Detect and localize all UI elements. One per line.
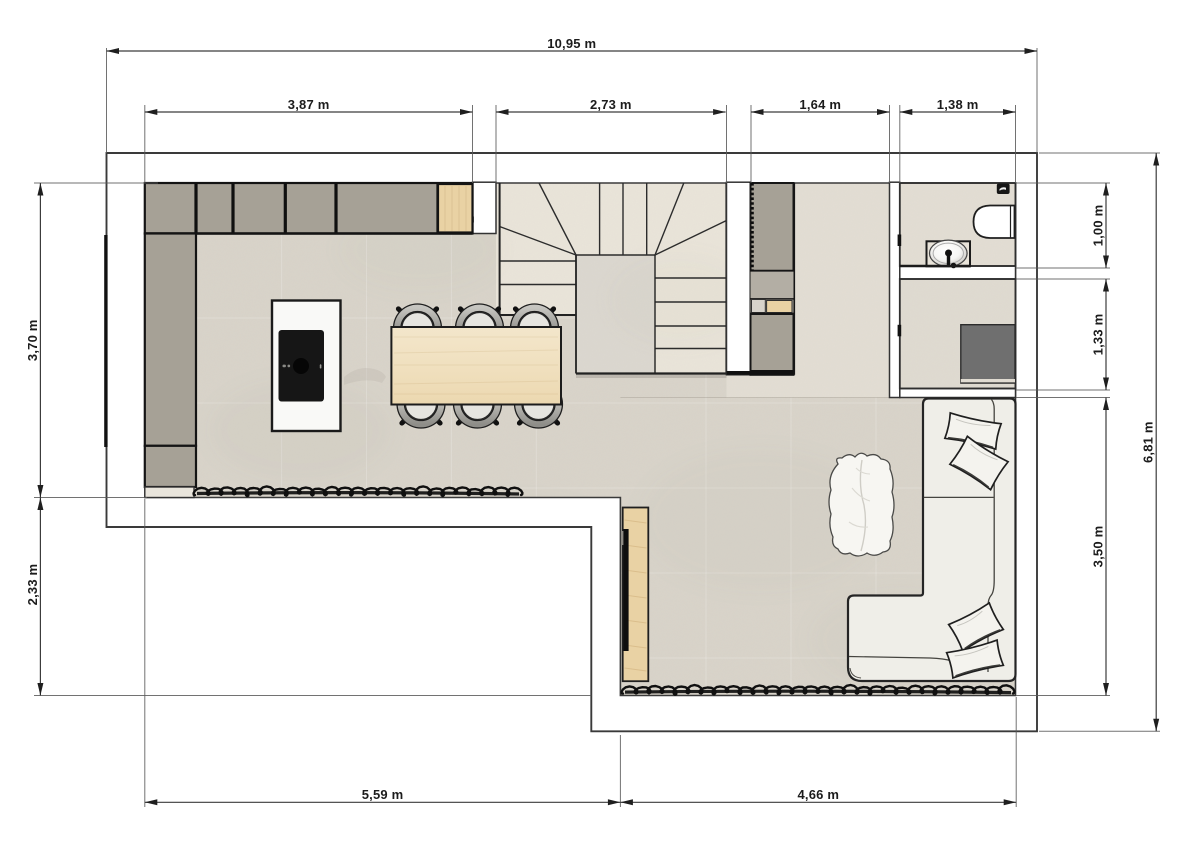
svg-text:3,50 m: 3,50 m: [1091, 526, 1106, 568]
svg-text:1,33 m: 1,33 m: [1091, 314, 1106, 356]
svg-text:1,64 m: 1,64 m: [799, 97, 841, 112]
svg-text:6,81 m: 6,81 m: [1141, 421, 1156, 463]
svg-text:3,70 m: 3,70 m: [25, 319, 40, 361]
svg-text:2,73 m: 2,73 m: [590, 97, 632, 112]
svg-text:3,87 m: 3,87 m: [288, 97, 330, 112]
svg-text:10,95 m: 10,95 m: [547, 36, 596, 51]
svg-text:2,33 m: 2,33 m: [25, 564, 40, 606]
svg-text:5,59 m: 5,59 m: [362, 787, 404, 802]
svg-text:4,66 m: 4,66 m: [797, 787, 839, 802]
svg-text:1,00 m: 1,00 m: [1091, 205, 1106, 247]
svg-text:1,38 m: 1,38 m: [937, 97, 979, 112]
